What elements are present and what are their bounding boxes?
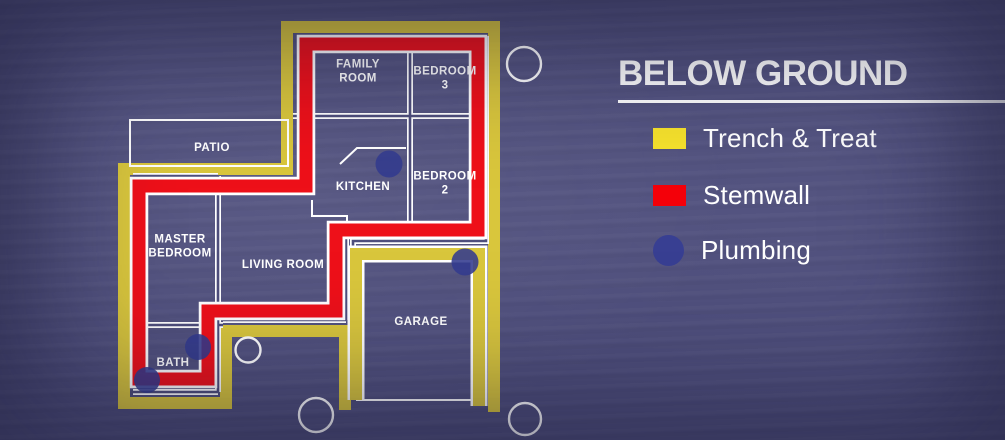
garage-trench-edge bbox=[356, 254, 479, 406]
trench-treat-swatch bbox=[653, 128, 686, 149]
room-label-kitchen: KITCHEN bbox=[336, 180, 390, 194]
trench-treat-label: Trench & Treat bbox=[703, 123, 877, 154]
stemwall-label: Stemwall bbox=[703, 180, 810, 211]
legend-title: BELOW GROUND bbox=[618, 56, 1005, 91]
legend-item-trench-treat: Trench & Treat bbox=[653, 123, 1005, 154]
plumbing-swatch bbox=[653, 235, 684, 266]
site-circle bbox=[299, 398, 333, 432]
plumbing-marker bbox=[134, 367, 160, 393]
plumbing-marker bbox=[376, 151, 403, 178]
plumbing-label: Plumbing bbox=[701, 235, 811, 266]
legend-item-plumbing: Plumbing bbox=[653, 235, 1005, 266]
site-circle bbox=[507, 47, 541, 81]
site-circle bbox=[236, 338, 261, 363]
room-label-master-bedroom: MASTER BEDROOM bbox=[148, 233, 211, 262]
room-label-family-room: FAMILY ROOM bbox=[336, 58, 380, 87]
plumbing-marker bbox=[452, 249, 479, 276]
room-label-patio: PATIO bbox=[194, 141, 230, 155]
legend-item-stemwall: Stemwall bbox=[653, 180, 1005, 211]
legend-panel: BELOW GROUND Trench & Treat Stemwall Plu… bbox=[618, 56, 1005, 266]
room-label-bath: BATH bbox=[157, 356, 190, 370]
below-ground-diagram: FAMILY ROOMBEDROOM 3PATIOKITCHENBEDROOM … bbox=[0, 0, 1005, 440]
site-circle bbox=[509, 403, 541, 435]
legend-title-underline bbox=[618, 100, 1005, 103]
stemwall-swatch bbox=[653, 185, 686, 206]
room-label-bedroom-2: BEDROOM 2 bbox=[413, 170, 476, 199]
room-label-living-room: LIVING ROOM bbox=[242, 258, 324, 272]
room-label-bedroom-3: BEDROOM 3 bbox=[413, 65, 476, 94]
garage-trench-band bbox=[356, 254, 479, 406]
room-label-garage: GARAGE bbox=[394, 315, 447, 329]
